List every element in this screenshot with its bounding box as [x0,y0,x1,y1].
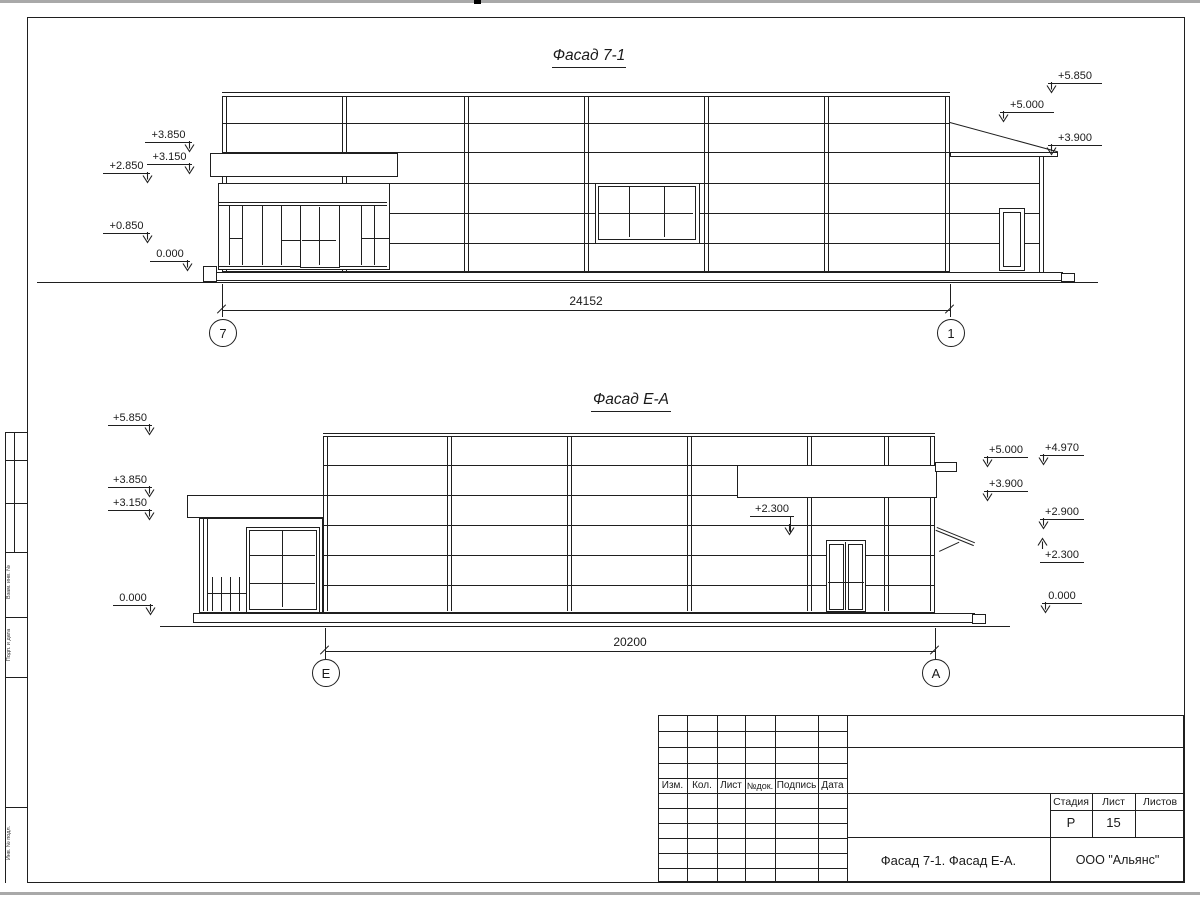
title-block-line [658,853,847,854]
fascia-protrusion [935,462,957,472]
paper-edge-top [0,0,1200,3]
storefront-mullion [281,206,282,265]
title-block-line [658,763,847,764]
annex-corner-column [203,519,208,611]
title-block-line [847,747,1185,748]
window-rail [599,213,693,214]
paper-edge-bottom [0,892,1200,895]
elevation-mark: 0.000 [150,248,190,262]
stage-label: Стадия [1050,796,1092,808]
doc-title: Фасад 7-1. Фасад Е-А. [847,853,1050,868]
elevation-mark: +5.850 [108,412,152,426]
axis-extension-line [935,628,936,659]
elevation-mark: +2.300 [750,503,794,517]
elevation-arrow-icon [1038,518,1049,530]
plinth-step [972,614,986,624]
sheet-label: Лист [1092,796,1135,808]
facade2-window-frame [249,530,317,610]
title-block-line [745,715,746,883]
elevation-arrow-icon [998,111,1009,123]
facade2-door-midrail [828,582,864,583]
fascia-band [737,465,937,498]
axis-label: 7 [219,326,226,341]
elevation-arrow-icon [1046,144,1057,156]
window-mullion [664,187,665,237]
revision-col-header: №док. [745,780,775,792]
elevation-arrow-icon [1038,454,1049,466]
title-block-line [658,793,1185,794]
title-block-line [717,715,718,883]
storefront-transom-line [219,202,387,203]
plinth-step [1061,273,1075,282]
elevation-mark: +2.850 [103,160,150,174]
revision-col-header: Дата [818,780,847,792]
elevation-arrow-icon [144,509,155,521]
title-block-line [658,808,847,809]
plinth-step [203,266,217,282]
window-rail [249,583,315,584]
margin-label: Взам. инв. № [6,552,12,612]
title-block-line [658,838,847,839]
column-joint-line [447,437,452,611]
margin-cell-line [5,807,27,808]
title-block-line [658,731,847,732]
column-joint-line [464,97,469,271]
window-rail [249,555,315,556]
elevation-arrow-icon [142,232,153,244]
axis-circle: 1 [937,319,965,347]
elevation-mark: +2.900 [1040,506,1084,520]
elevation-mark: 0.000 [113,592,153,606]
elevation-mark: +5.000 [1000,99,1054,113]
fence-slat [212,577,213,611]
elevation-mark: +0.850 [103,220,150,234]
elevation-mark: +3.150 [108,497,152,511]
sheet-value: 15 [1092,815,1135,830]
revision-col-header: Подпись [775,780,818,792]
fence-slat [230,577,231,611]
title-block-line [658,747,847,748]
storefront-mullion [361,206,362,265]
elevation-mark: +3.150 [147,151,192,165]
margin-cell-line [5,503,27,504]
margin-label: Подп. и дата [6,615,12,675]
elevation-arrow-icon [144,424,155,436]
column-joint-line [807,437,812,611]
plinth [206,272,1063,281]
elevation-arrow-icon [142,172,153,184]
elevation-arrow-icon [1037,537,1048,549]
column-joint-line [704,97,709,271]
facade2-door-leaf [829,544,844,610]
entrance-door [300,205,340,268]
plinth [193,613,975,623]
dimension-line [222,310,950,311]
dimension-line [325,651,935,652]
margin-cell-line [5,460,27,461]
margin-label: Инв. № подл. [6,813,12,873]
elevation-mark: +3.850 [145,129,192,143]
axis-circle: А [922,659,950,687]
title-block-line [687,715,688,883]
facade2-canopy [187,495,324,518]
drawing-sheet: Взам. инв. № Подп. и дата Инв. № подл. Ф… [0,0,1200,900]
axis-extension-line [950,284,951,317]
column-joint-line [824,97,829,271]
title-block-line [775,715,776,883]
facade1-title: Фасад 7-1 [552,47,626,68]
annex-corner-column [1039,157,1044,272]
elevation-mark: +3.900 [1048,132,1102,146]
elevation-mark: +3.850 [108,474,152,488]
elevation-mark: +5.850 [1048,70,1102,84]
facade2-title: Фасад Е-А [591,391,671,412]
elevation-arrow-icon [184,163,195,175]
storefront-mullion [374,206,375,265]
facade2-door-leaf [848,544,863,610]
elevation-mark: +3.900 [984,478,1028,492]
entrance-door-midrail [302,240,336,241]
storefront-mullion [262,206,263,265]
revision-col-header: Лист [717,780,745,792]
elevation-arrow-icon [1040,602,1051,614]
sheets-label: Листов [1135,796,1185,808]
axis-label: А [932,666,941,681]
window-mullion [282,531,283,607]
entrance-canopy [210,153,398,177]
storefront-midrail [281,240,300,241]
column-joint-line [884,437,889,611]
corner-joint-line [945,97,946,271]
entrance-door-divider [319,207,320,265]
elevation-mark: +4.970 [1040,442,1084,456]
title-block-line [658,778,847,779]
storefront-midrail [229,238,242,239]
dimension-value: 20200 [580,635,680,649]
elevation-arrow-icon [1046,82,1057,94]
facade2-door-divider [845,542,846,610]
fold-mark [474,0,481,4]
ground-line [160,626,1010,627]
margin-column-subline [14,432,15,552]
elevation-mark: +2.300 [1040,549,1084,563]
elevation-arrow-icon [182,260,193,272]
storefront-mullion [229,206,230,265]
margin-cell-line [5,432,27,433]
elevation-arrow-icon [784,524,795,536]
fence-rail [208,593,246,594]
margin-cell-line [5,677,27,678]
storefront-midrail [361,238,389,239]
annex-door-leaf [1003,212,1021,267]
axis-extension-line [325,628,326,659]
title-block-line [658,823,847,824]
title-block-line [818,715,819,883]
axis-label: Е [322,666,331,681]
elevation-mark: +5.000 [984,444,1028,458]
company-name: ООО "Альянс" [1050,853,1185,867]
revision-col-header: Кол. [687,780,717,792]
elevation-arrow-icon [982,456,993,468]
title-block-line [847,837,1185,838]
window-mullion [629,187,630,237]
ground-line [37,282,1098,283]
title-block-line [658,868,847,869]
column-joint-line [584,97,589,271]
elevation-arrow-icon [982,490,993,502]
panel-joint-line [323,525,935,526]
axis-extension-line [222,284,223,317]
corner-joint-line [327,437,328,611]
fence-slat [239,577,240,611]
axis-label: 1 [947,326,954,341]
revision-col-header: Изм. [658,780,687,792]
stage-value: Р [1050,815,1092,830]
panel-joint-line [950,213,1040,214]
facade2-parapet-line [323,433,935,434]
axis-circle: Е [312,659,340,687]
elevation-arrow-icon [145,604,156,616]
elevation-mark: 0.000 [1042,590,1082,604]
panel-joint-line [950,243,1040,244]
title-block-line [1050,810,1185,811]
corner-joint-line [930,437,931,611]
dimension-value: 24152 [536,294,636,308]
panel-joint-line [950,183,1040,184]
facade1-parapet-line [222,92,950,93]
storefront-mullion [242,206,243,265]
column-joint-line [567,437,572,611]
column-joint-line [687,437,692,611]
axis-circle: 7 [209,319,237,347]
fence-slat [221,577,222,611]
